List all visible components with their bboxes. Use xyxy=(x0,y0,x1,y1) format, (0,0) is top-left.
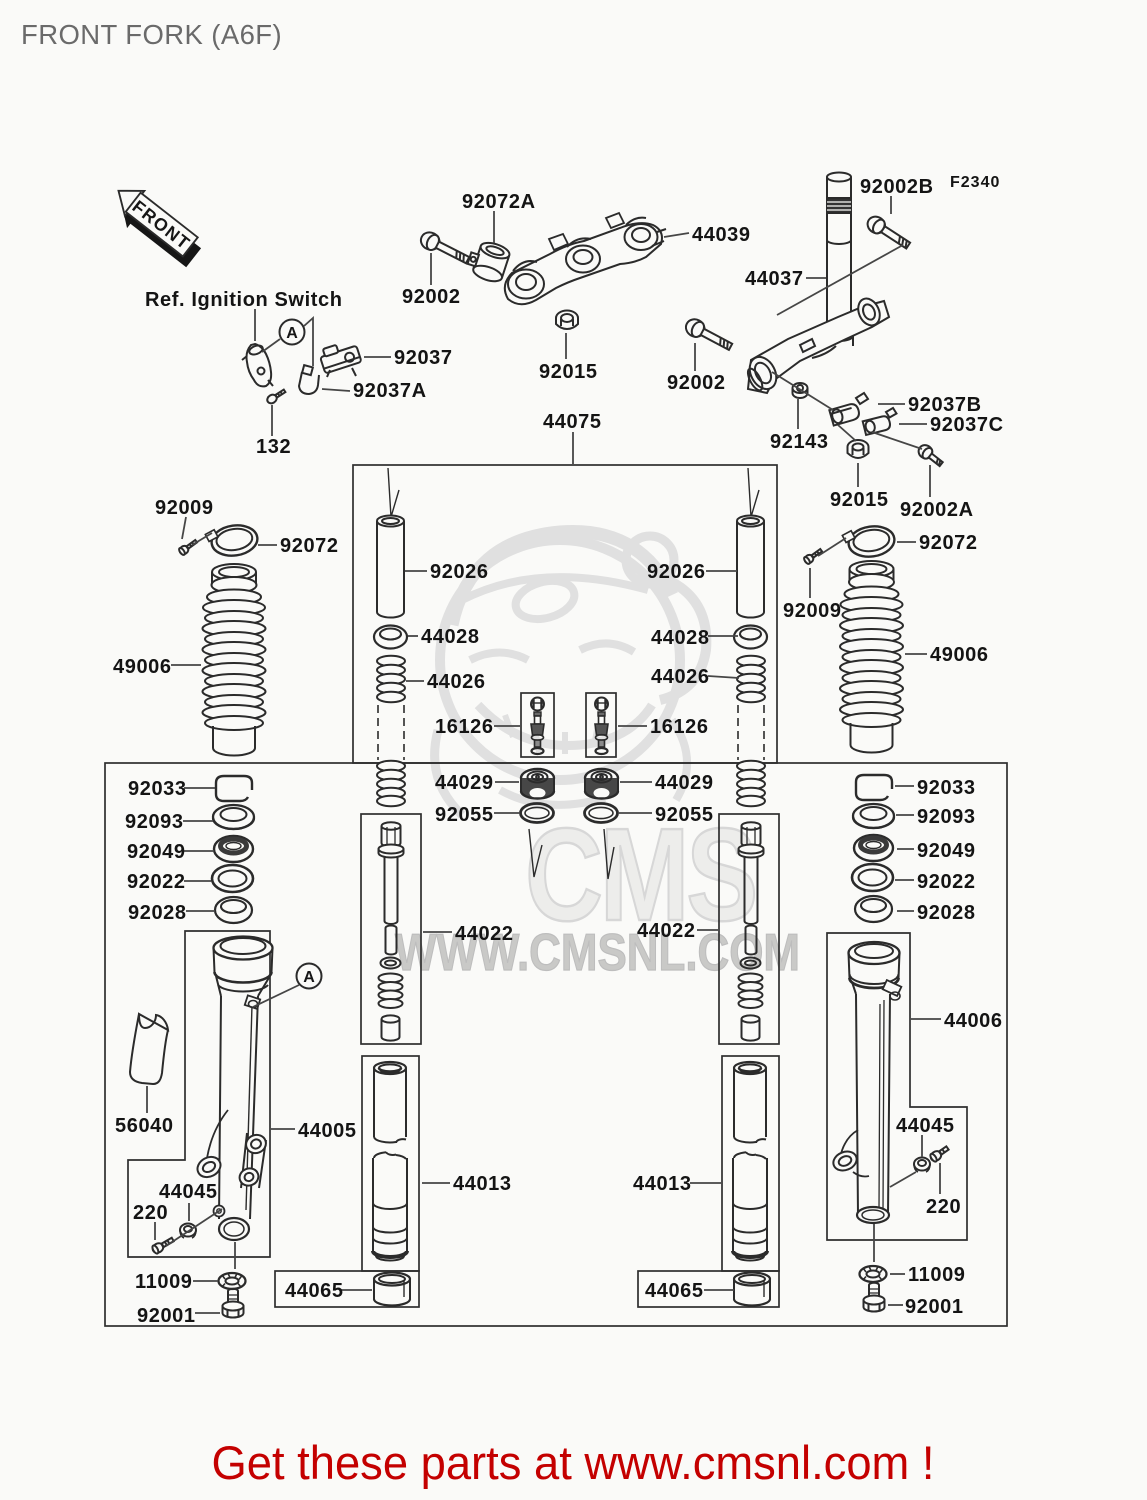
svg-text:44039: 44039 xyxy=(692,224,751,246)
svg-text:Ref. Ignition Switch: Ref. Ignition Switch xyxy=(145,289,343,311)
svg-text:92037: 92037 xyxy=(394,347,453,369)
svg-text:92093: 92093 xyxy=(917,806,976,828)
svg-text:44075: 44075 xyxy=(543,411,602,433)
svg-text:92055: 92055 xyxy=(655,804,714,826)
svg-text:44065: 44065 xyxy=(285,1280,344,1302)
svg-text:92002B: 92002B xyxy=(860,176,934,198)
svg-text:49006: 49006 xyxy=(930,644,989,666)
svg-text:44037: 44037 xyxy=(745,268,804,290)
svg-text:92037A: 92037A xyxy=(353,380,427,402)
svg-text:92037B: 92037B xyxy=(908,394,982,416)
svg-text:92072: 92072 xyxy=(919,532,978,554)
svg-text:44022: 44022 xyxy=(637,920,696,942)
svg-text:92093: 92093 xyxy=(125,811,184,833)
svg-text:92002: 92002 xyxy=(667,372,726,394)
svg-text:44026: 44026 xyxy=(651,666,710,688)
svg-text:44026: 44026 xyxy=(427,671,486,693)
svg-text:44022: 44022 xyxy=(455,923,514,945)
svg-text:44029: 44029 xyxy=(655,772,714,794)
svg-text:44065: 44065 xyxy=(645,1280,704,1302)
svg-text:92009: 92009 xyxy=(155,497,214,519)
svg-text:92026: 92026 xyxy=(430,561,489,583)
svg-text:92002: 92002 xyxy=(402,286,461,308)
svg-text:11009: 11009 xyxy=(908,1264,966,1286)
svg-text:44045: 44045 xyxy=(159,1181,218,1203)
svg-text:44045: 44045 xyxy=(896,1115,955,1137)
svg-text:92055: 92055 xyxy=(435,804,494,826)
svg-text:16126: 16126 xyxy=(650,716,709,738)
svg-text:92037C: 92037C xyxy=(930,414,1004,436)
svg-text:92028: 92028 xyxy=(917,902,976,924)
svg-text:49006: 49006 xyxy=(113,656,172,678)
svg-text:92033: 92033 xyxy=(917,777,976,799)
svg-text:92049: 92049 xyxy=(127,841,186,863)
svg-text:92072A: 92072A xyxy=(462,191,536,213)
svg-text:132: 132 xyxy=(256,436,291,458)
svg-text:92026: 92026 xyxy=(647,561,706,583)
svg-text:92001: 92001 xyxy=(137,1305,196,1327)
svg-text:92143: 92143 xyxy=(770,431,829,453)
svg-text:F2340: F2340 xyxy=(950,174,1000,191)
svg-text:44028: 44028 xyxy=(421,626,480,648)
svg-text:92022: 92022 xyxy=(917,871,976,893)
svg-text:44028: 44028 xyxy=(651,627,710,649)
svg-text:92002A: 92002A xyxy=(900,499,974,521)
svg-text:92022: 92022 xyxy=(127,871,186,893)
svg-text:FRONT FORK (A6F): FRONT FORK (A6F) xyxy=(21,19,282,50)
svg-text:44013: 44013 xyxy=(633,1173,692,1195)
svg-text:92009: 92009 xyxy=(783,600,842,622)
svg-text:44005: 44005 xyxy=(298,1120,357,1142)
svg-text:92072: 92072 xyxy=(280,535,339,557)
svg-text:92001: 92001 xyxy=(905,1296,964,1318)
svg-text:44006: 44006 xyxy=(944,1010,1003,1032)
svg-text:92033: 92033 xyxy=(128,778,187,800)
svg-text:220: 220 xyxy=(926,1196,961,1218)
svg-text:A: A xyxy=(303,969,315,986)
svg-text:92015: 92015 xyxy=(830,489,889,511)
svg-text:16126: 16126 xyxy=(435,716,494,738)
svg-text:11009: 11009 xyxy=(135,1271,193,1293)
svg-text:92015: 92015 xyxy=(539,361,598,383)
svg-text:92028: 92028 xyxy=(128,902,187,924)
svg-text:220: 220 xyxy=(133,1202,168,1224)
svg-text:A: A xyxy=(286,325,298,342)
svg-text:92049: 92049 xyxy=(917,840,976,862)
svg-text:Get these parts at www.cmsnl.c: Get these parts at www.cmsnl.com ! xyxy=(212,1436,935,1489)
svg-text:44013: 44013 xyxy=(453,1173,512,1195)
svg-text:56040: 56040 xyxy=(115,1115,174,1137)
svg-text:44029: 44029 xyxy=(435,772,494,794)
